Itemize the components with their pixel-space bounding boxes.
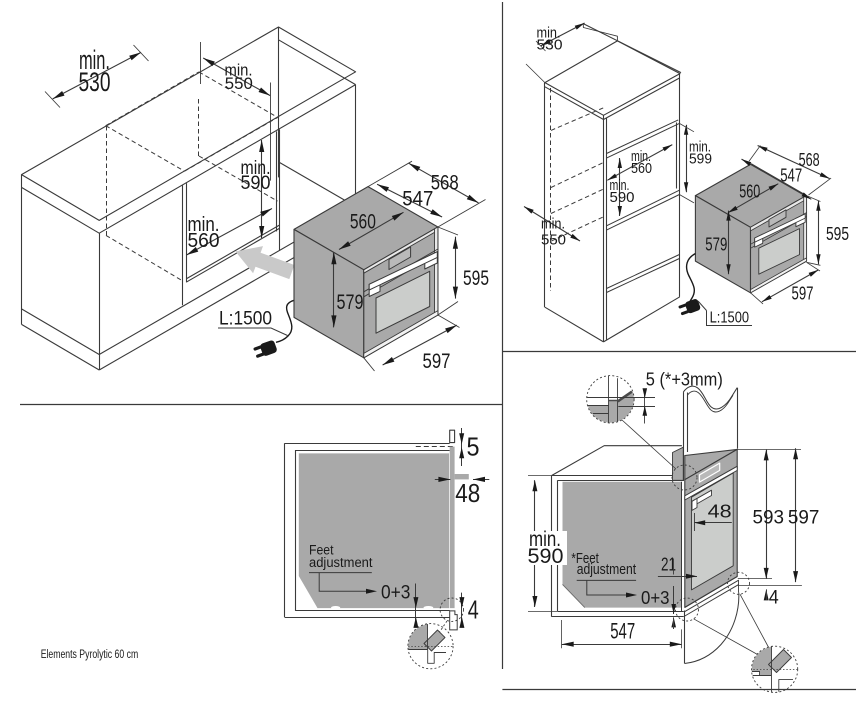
svg-text:530: 530 bbox=[79, 67, 111, 97]
svg-text:599: 599 bbox=[689, 151, 712, 168]
svg-text:Elements Pyrolytic 60 cm: Elements Pyrolytic 60 cm bbox=[41, 649, 139, 661]
svg-text:L:1500: L:1500 bbox=[710, 310, 750, 327]
svg-text:0+3: 0+3 bbox=[641, 588, 670, 608]
svg-text:590: 590 bbox=[528, 545, 564, 568]
svg-text:597: 597 bbox=[788, 508, 820, 529]
svg-text:579: 579 bbox=[705, 234, 727, 255]
svg-text:5: 5 bbox=[467, 432, 480, 462]
svg-text:595: 595 bbox=[463, 267, 489, 290]
svg-text:adjustment: adjustment bbox=[577, 562, 636, 578]
svg-text:530: 530 bbox=[537, 37, 563, 54]
svg-text:547: 547 bbox=[402, 187, 433, 210]
svg-text:560: 560 bbox=[631, 160, 652, 177]
svg-text:590: 590 bbox=[241, 173, 271, 194]
svg-text:0+3: 0+3 bbox=[381, 582, 410, 603]
svg-text:568: 568 bbox=[431, 171, 459, 194]
svg-text:4: 4 bbox=[468, 595, 479, 625]
svg-text:48: 48 bbox=[708, 501, 732, 522]
svg-text:550: 550 bbox=[541, 232, 566, 249]
svg-text:L:1500: L:1500 bbox=[219, 309, 272, 330]
svg-text:560: 560 bbox=[739, 181, 760, 202]
svg-text:593: 593 bbox=[753, 508, 785, 529]
svg-text:550: 550 bbox=[225, 74, 253, 93]
svg-text:4: 4 bbox=[769, 588, 779, 609]
svg-text:590: 590 bbox=[610, 189, 635, 206]
svg-text:min.: min. bbox=[541, 216, 565, 233]
svg-text:597: 597 bbox=[423, 350, 451, 373]
svg-text:568: 568 bbox=[799, 149, 820, 170]
svg-text:547: 547 bbox=[610, 619, 635, 644]
svg-text:597: 597 bbox=[792, 283, 814, 304]
svg-text:adjustment: adjustment bbox=[309, 555, 373, 570]
svg-text:5 (*+3mm): 5 (*+3mm) bbox=[646, 370, 723, 390]
svg-text:560: 560 bbox=[350, 211, 376, 234]
svg-text:579: 579 bbox=[337, 291, 364, 314]
svg-text:48: 48 bbox=[455, 478, 480, 508]
svg-text:595: 595 bbox=[826, 223, 849, 244]
svg-text:560: 560 bbox=[188, 230, 220, 252]
